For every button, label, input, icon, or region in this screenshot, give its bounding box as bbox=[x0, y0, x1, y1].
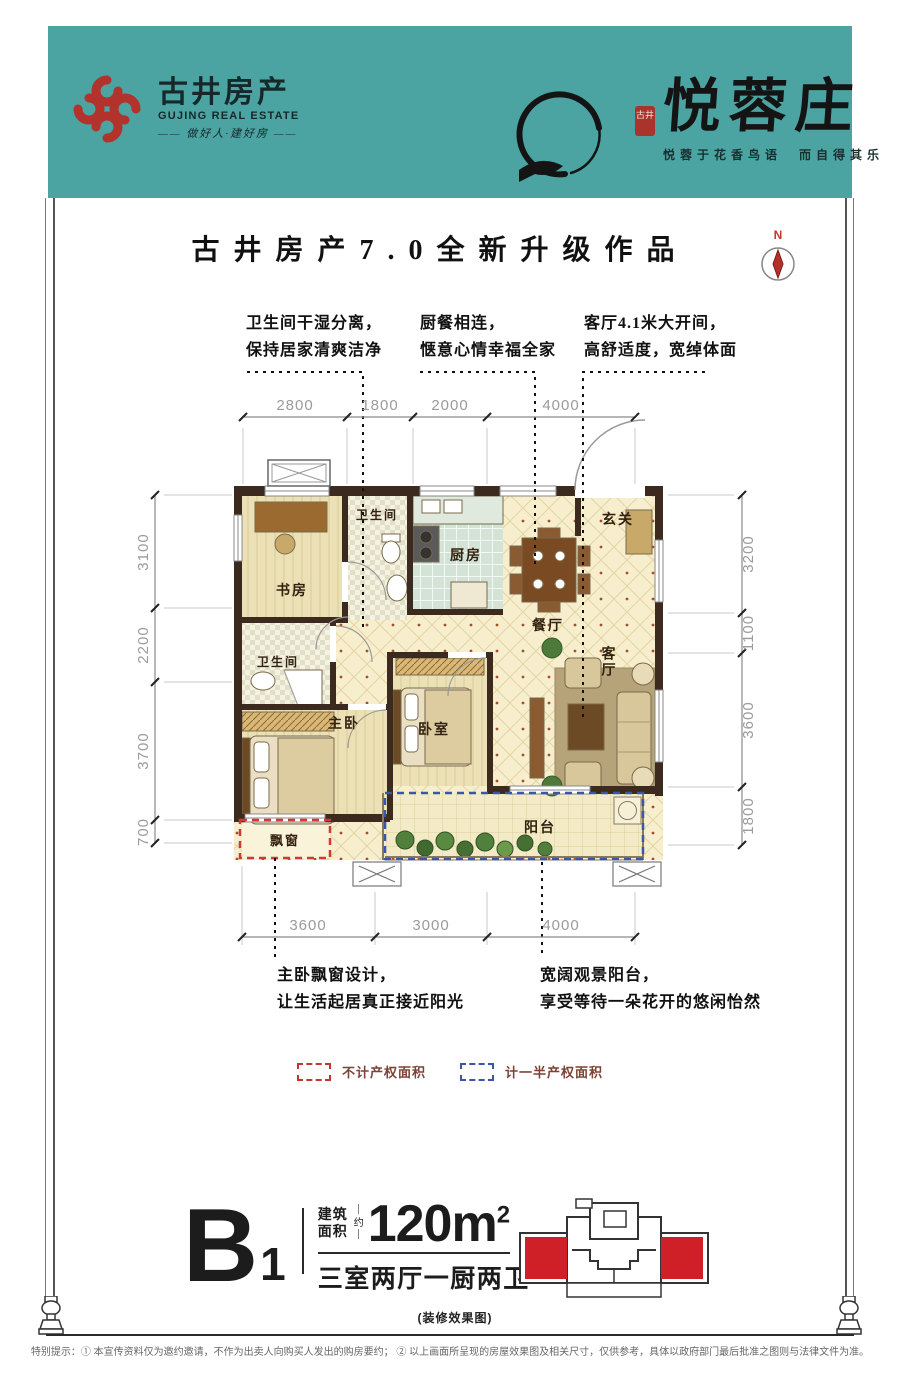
callout-balcony: 宽阔观景阳台， 享受等待一朵花开的悠闲怡然 bbox=[540, 962, 761, 1016]
project-tagline: 悦蓉于花香鸟语 而自得其乐 bbox=[663, 146, 884, 163]
project-name: 悦蓉庄 bbox=[661, 78, 886, 136]
dim-left-4: 700 bbox=[135, 818, 152, 846]
room-label-bay: 飘窗 bbox=[270, 833, 300, 848]
callout-line: 享受等待一朵花开的悠闲怡然 bbox=[540, 989, 761, 1016]
area-label-line2: 面积 bbox=[318, 1223, 348, 1240]
dim-right-2: 1100 bbox=[740, 615, 757, 651]
area-exponent: 2 bbox=[497, 1202, 509, 1229]
legend-label: 不计产权面积 bbox=[342, 1062, 426, 1081]
approx-label: 约 bbox=[354, 1214, 364, 1229]
room-label-master: 主卧 bbox=[328, 715, 360, 732]
compass-icon: N bbox=[756, 226, 800, 286]
room-label-bedroom: 卧室 bbox=[418, 721, 450, 738]
brand-seal: 古井 bbox=[635, 106, 655, 136]
unit-number: 1 bbox=[260, 1237, 286, 1291]
developer-slogan: —— 做好人·建好房 —— bbox=[158, 125, 299, 141]
page-title: 古井房产7.0全新升级作品 bbox=[0, 228, 880, 268]
highlight-unit-right bbox=[661, 1237, 703, 1279]
unit-area: 120m2 bbox=[368, 1202, 509, 1246]
dim-top-1: 2800 bbox=[276, 397, 313, 414]
room-label-bath1: 卫生间 bbox=[356, 507, 398, 522]
dim-bottom-1: 3600 bbox=[289, 917, 326, 934]
room-label-balcony: 阳台 bbox=[524, 819, 556, 836]
svg-text:N: N bbox=[774, 228, 783, 242]
floor-plan: 2800 1800 2000 4000 3100 2200 3700 700 3… bbox=[120, 300, 800, 970]
room-label-bath2: 卫生间 bbox=[257, 654, 299, 669]
dim-right-4: 1800 bbox=[740, 797, 757, 834]
poster-page: 古井房产 GUJING REAL ESTATE —— 做好人·建好房 —— 古井… bbox=[0, 0, 900, 1386]
developer-logo: 古井房产 GUJING REAL ESTATE —— 做好人·建好房 —— bbox=[70, 72, 299, 146]
frame-line-right-inner bbox=[845, 198, 847, 1298]
dim-top-4: 4000 bbox=[542, 397, 579, 414]
legend-item-no-property: 不计产权面积 bbox=[297, 1062, 426, 1081]
dim-top-3: 2000 bbox=[431, 397, 468, 414]
area-value: 120m bbox=[368, 1195, 497, 1253]
unit-code: B bbox=[183, 1202, 258, 1291]
unit-divider bbox=[302, 1208, 304, 1274]
highlight-unit-left bbox=[525, 1237, 567, 1279]
render-caption: (装修效果图) bbox=[0, 1309, 900, 1326]
legend-label: 计一半产权面积 bbox=[505, 1062, 603, 1081]
footer-rule bbox=[46, 1334, 854, 1336]
room-label-kitchen: 厨房 bbox=[450, 547, 482, 564]
building-key-plan bbox=[512, 1195, 724, 1325]
blue-dash-swatch bbox=[460, 1063, 494, 1081]
dim-left-1: 3100 bbox=[135, 533, 152, 570]
dim-right-1: 3200 bbox=[740, 535, 757, 572]
unit-rule bbox=[318, 1252, 510, 1254]
project-logo: 古井 悦蓉庄 悦蓉于花香鸟语 而自得其乐 bbox=[505, 78, 884, 190]
dim-left-2: 2200 bbox=[135, 626, 152, 663]
callout-line: 让生活起居真正接近阳光 bbox=[277, 989, 464, 1016]
room-label-foyer: 玄关 bbox=[602, 511, 634, 528]
dim-top-2: 1800 bbox=[361, 397, 398, 414]
frame-line-left-outer bbox=[45, 198, 46, 1298]
dim-right-3: 3600 bbox=[740, 701, 757, 738]
developer-name: 古井房产 bbox=[158, 77, 299, 109]
dim-bottom-2: 3000 bbox=[412, 917, 449, 934]
legend: 不计产权面积 计一半产权面积 bbox=[0, 1062, 900, 1081]
unit-info: B 1 建筑 面积 约 120m2 三室两厅一厨两卫 bbox=[183, 1202, 530, 1295]
disclaimer: 特别提示：① 本宣传资料仅为邀约邀请，不作为出卖人向购买人发出的购房要约； ② … bbox=[0, 1343, 900, 1358]
enso-fish-icon bbox=[505, 78, 617, 190]
room-label-living: 客厅 bbox=[600, 645, 617, 678]
frame-line-right-outer bbox=[853, 198, 854, 1298]
developer-name-en: GUJING REAL ESTATE bbox=[158, 110, 299, 122]
dim-bottom-3: 4000 bbox=[542, 917, 579, 934]
unit-layout: 三室两厅一厨两卫 bbox=[318, 1259, 530, 1295]
room-label-dining: 餐厅 bbox=[531, 617, 564, 634]
callout-baywindow: 主卧飘窗设计， 让生活起居真正接近阳光 bbox=[277, 962, 464, 1016]
approx-mark: 约 bbox=[354, 1204, 364, 1239]
gujing-logo-icon bbox=[70, 72, 144, 146]
room-label-study: 书房 bbox=[276, 582, 308, 599]
frame-line-left-inner bbox=[53, 198, 55, 1298]
dim-left-3: 3700 bbox=[135, 732, 152, 769]
area-label-line1: 建筑 bbox=[318, 1206, 348, 1223]
red-dash-swatch bbox=[297, 1063, 331, 1081]
legend-item-half-property: 计一半产权面积 bbox=[460, 1062, 603, 1081]
